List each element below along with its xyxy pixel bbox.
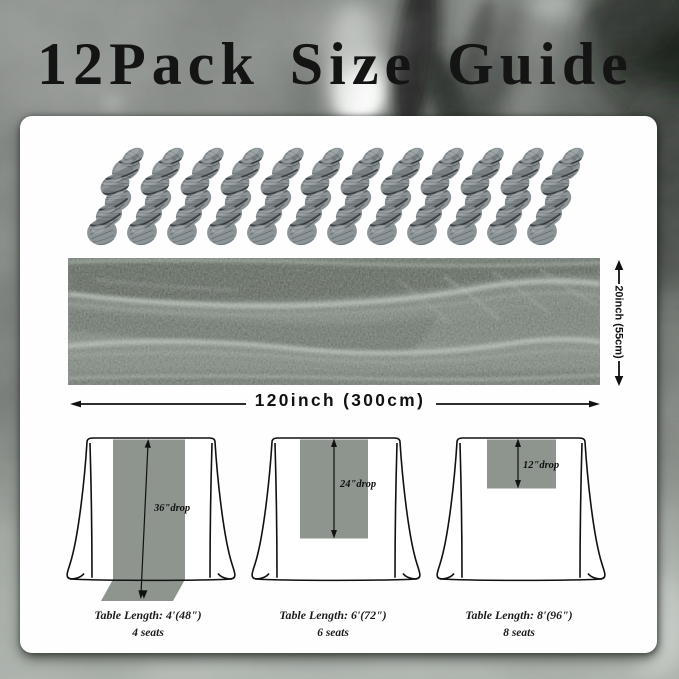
svg-text:36"drop: 36"drop	[153, 503, 190, 514]
svg-text:12"drop: 12"drop	[523, 460, 559, 471]
svg-text:24"drop: 24"drop	[339, 479, 376, 490]
